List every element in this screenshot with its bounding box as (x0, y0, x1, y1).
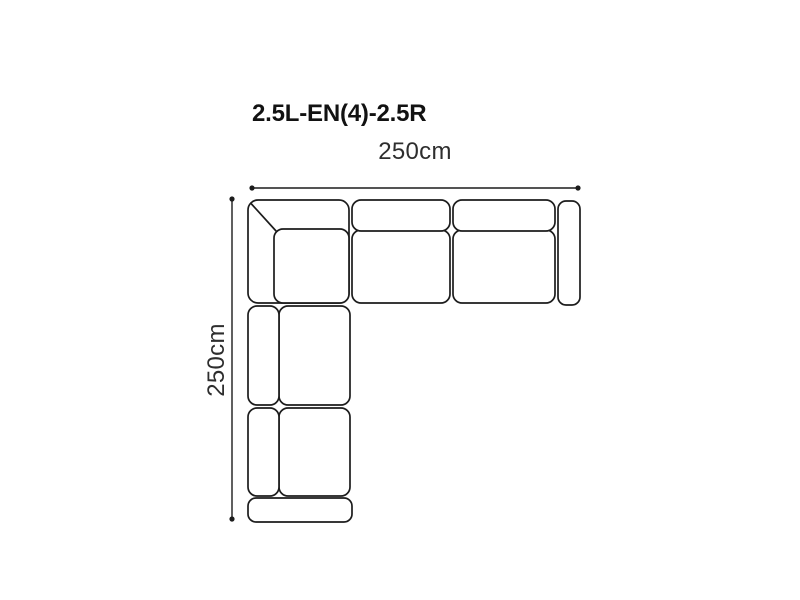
middle-seat-cushion (352, 230, 450, 303)
bottom-armrest (248, 498, 352, 522)
corner-section-seat (274, 229, 349, 303)
sofa-outline (248, 200, 580, 522)
depth-dimension-end-dot-top (229, 196, 234, 201)
depth-dimension-end-dot-bottom (229, 516, 234, 521)
product-code-title: 2.5L-EN(4)-2.5R (252, 100, 426, 127)
lower-left-back-cushion (248, 408, 279, 496)
lower-left-seat-cushion (279, 408, 350, 496)
upper-left-seat-cushion (279, 306, 350, 405)
width-dimension-label: 250cm (378, 138, 452, 165)
width-dimension-end-dot-left (249, 185, 254, 190)
depth-dimension: 250cm (203, 196, 235, 521)
middle-back-cushion (352, 200, 450, 231)
right-armrest (558, 201, 580, 305)
sofa-dimension-diagram-page: 2.5L-EN(4)-2.5R 250cm 250cm (0, 0, 800, 600)
width-dimension: 250cm (249, 138, 580, 191)
depth-dimension-label: 250cm (203, 323, 230, 397)
sofa-dimension-diagram: 2.5L-EN(4)-2.5R 250cm 250cm (0, 0, 800, 600)
width-dimension-end-dot-right (575, 185, 580, 190)
right-back-cushion (453, 200, 555, 231)
right-seat-cushion (453, 230, 555, 303)
upper-left-back-cushion (248, 306, 279, 405)
